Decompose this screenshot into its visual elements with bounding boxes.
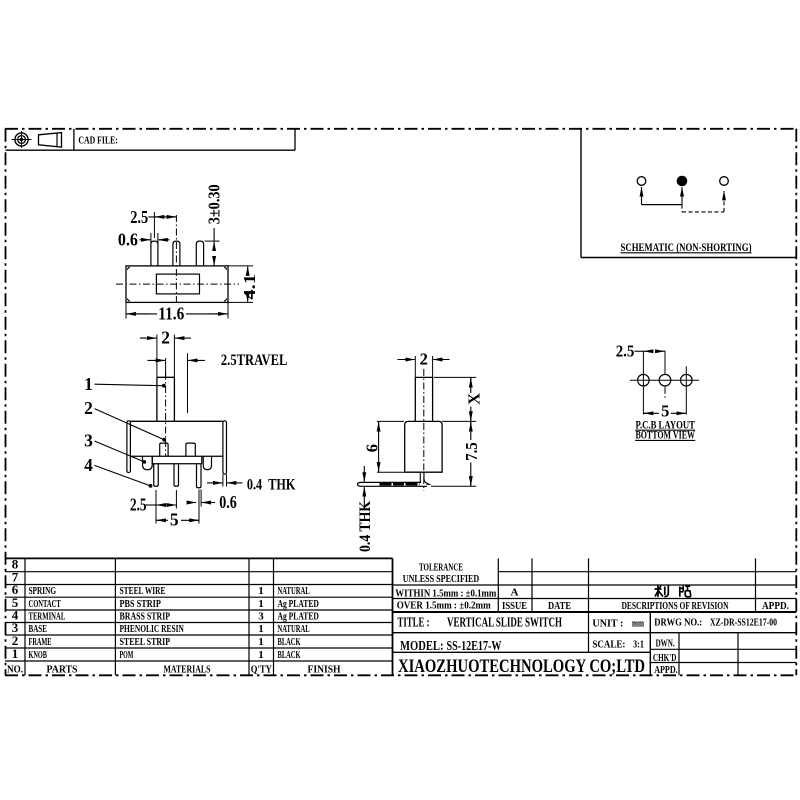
svg-text:2.5: 2.5 bbox=[130, 494, 147, 514]
svg-text:NO.: NO. bbox=[7, 663, 23, 675]
svg-text:POM: POM bbox=[120, 650, 134, 661]
svg-text:1: 1 bbox=[258, 649, 264, 661]
svg-text:DESCRIPTIONS OF REVISION: DESCRIPTIONS OF REVISION bbox=[622, 601, 730, 612]
svg-text:Q'TY: Q'TY bbox=[251, 663, 272, 675]
svg-text:1: 1 bbox=[258, 623, 264, 635]
svg-text:2.5TRAVEL: 2.5TRAVEL bbox=[221, 352, 288, 369]
svg-text:CAD FILE:: CAD FILE: bbox=[78, 135, 118, 147]
svg-text:TITLE :: TITLE : bbox=[398, 615, 430, 630]
svg-text:7.5: 7.5 bbox=[462, 442, 481, 461]
svg-text:DRWG NO.:: DRWG NO.: bbox=[654, 617, 702, 628]
svg-text:SCALE:: SCALE: bbox=[592, 638, 625, 650]
svg-text:KNOB: KNOB bbox=[29, 650, 48, 661]
svg-text:CHK'D: CHK'D bbox=[653, 653, 677, 664]
svg-text:NATURAL: NATURAL bbox=[278, 624, 310, 635]
svg-text:BRASS STRIP: BRASS STRIP bbox=[120, 611, 171, 622]
svg-text:SPRING: SPRING bbox=[29, 586, 57, 597]
svg-text:XIAOZHUOTECHNOLOGY CO;LTD: XIAOZHUOTECHNOLOGY CO;LTD bbox=[398, 657, 645, 677]
svg-text:SCHEMATIC (NON-SHORTING): SCHEMATIC (NON-SHORTING) bbox=[621, 240, 752, 254]
svg-text:2: 2 bbox=[161, 328, 170, 348]
svg-text:TOLERANCE: TOLERANCE bbox=[419, 563, 463, 574]
svg-text:DATE: DATE bbox=[548, 601, 571, 612]
svg-text:PBS STRIP: PBS STRIP bbox=[120, 599, 161, 610]
svg-text:UNLESS SPECIFIED: UNLESS SPECIFIED bbox=[403, 574, 480, 585]
svg-text:VERTICAL SLIDE SWITCH: VERTICAL SLIDE SWITCH bbox=[447, 615, 562, 630]
svg-text:CONTACT: CONTACT bbox=[29, 599, 61, 610]
svg-text:TERMINAL: TERMINAL bbox=[29, 611, 66, 622]
svg-text:0.6: 0.6 bbox=[219, 492, 237, 512]
svg-text:6: 6 bbox=[362, 444, 381, 452]
svg-text:ISSUE: ISSUE bbox=[502, 601, 527, 612]
svg-text:MODEL:: MODEL: bbox=[400, 638, 444, 653]
svg-text:1: 1 bbox=[258, 598, 264, 610]
svg-text:3: 3 bbox=[84, 431, 93, 451]
svg-text:BLACK: BLACK bbox=[278, 650, 301, 661]
svg-text:1: 1 bbox=[84, 374, 93, 394]
svg-text:XZ-DR-SS12E17-00: XZ-DR-SS12E17-00 bbox=[710, 617, 777, 628]
svg-text:mm: mm bbox=[632, 618, 644, 630]
svg-text:FINISH: FINISH bbox=[308, 663, 341, 675]
svg-text:X: X bbox=[465, 393, 484, 405]
svg-text:4.1: 4.1 bbox=[240, 274, 259, 300]
svg-text:PARTS: PARTS bbox=[47, 663, 78, 675]
svg-text:5: 5 bbox=[170, 509, 179, 529]
svg-text:1: 1 bbox=[258, 636, 264, 648]
svg-text:3:1: 3:1 bbox=[633, 638, 644, 650]
svg-text:2: 2 bbox=[420, 349, 428, 368]
svg-text:0.4 THK: 0.4 THK bbox=[357, 501, 374, 552]
svg-text:4: 4 bbox=[84, 455, 93, 475]
svg-text:BOTTOM VIEW: BOTTOM VIEW bbox=[635, 428, 695, 442]
svg-text:3: 3 bbox=[258, 610, 264, 622]
svg-text:1: 1 bbox=[258, 585, 264, 597]
svg-text:STEEL WIRE: STEEL WIRE bbox=[120, 586, 166, 597]
svg-text:0.4 THK: 0.4 THK bbox=[247, 476, 296, 493]
svg-text:NATURAL: NATURAL bbox=[278, 586, 310, 597]
svg-text:Ag PLATED: Ag PLATED bbox=[278, 599, 319, 610]
svg-text:FRAME: FRAME bbox=[29, 637, 52, 648]
svg-text:WITHIN 1.5mm : ±0.1mm: WITHIN 1.5mm : ±0.1mm bbox=[395, 588, 496, 599]
svg-text:Ag PLATED: Ag PLATED bbox=[278, 611, 319, 622]
svg-text:A: A bbox=[511, 587, 519, 599]
svg-text:3±0.30: 3±0.30 bbox=[205, 184, 224, 224]
svg-text:STEEL STRIP: STEEL STRIP bbox=[120, 637, 171, 648]
svg-text:MATERIALS: MATERIALS bbox=[164, 663, 211, 675]
svg-text:2.5: 2.5 bbox=[616, 342, 635, 361]
svg-text:BLACK: BLACK bbox=[278, 637, 301, 648]
svg-text:2: 2 bbox=[84, 398, 93, 418]
svg-text:DWN.: DWN. bbox=[656, 639, 675, 650]
svg-text:UNIT :: UNIT : bbox=[592, 618, 623, 630]
svg-text:APPD.: APPD. bbox=[654, 665, 678, 676]
svg-text:PHENOLIC RESIN: PHENOLIC RESIN bbox=[120, 624, 185, 635]
svg-text:2.5: 2.5 bbox=[130, 207, 148, 227]
svg-text:APPD.: APPD. bbox=[762, 601, 789, 612]
svg-text:BASE: BASE bbox=[29, 624, 48, 635]
svg-text:1: 1 bbox=[12, 646, 19, 661]
svg-text:0.6: 0.6 bbox=[118, 229, 138, 249]
svg-text:11.6: 11.6 bbox=[158, 303, 184, 323]
svg-text:OVER 1.5mm : ±0.2mm: OVER 1.5mm : ±0.2mm bbox=[397, 601, 491, 612]
svg-text:SS-12E17-W: SS-12E17-W bbox=[447, 638, 502, 653]
